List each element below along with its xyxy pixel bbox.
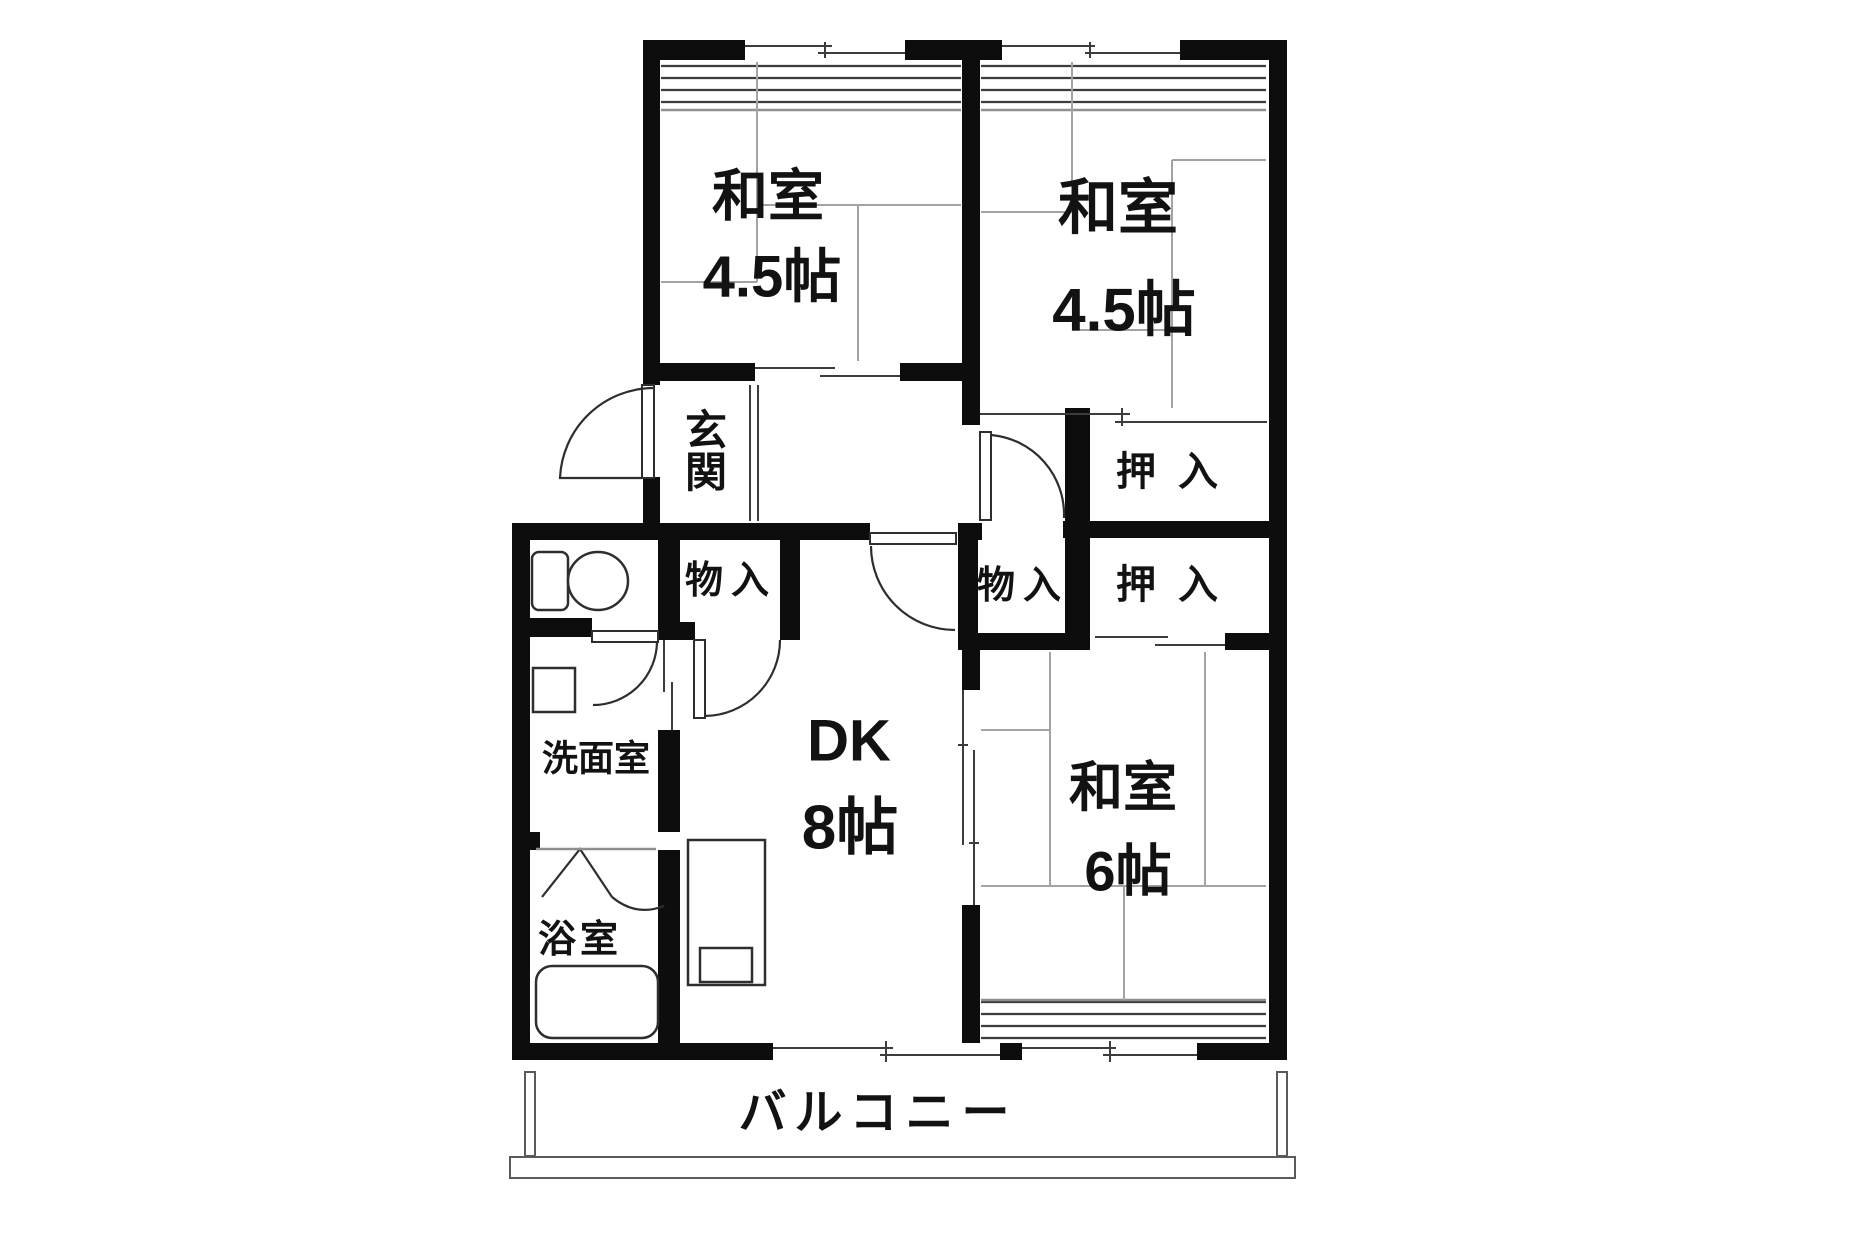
wall-left-upper <box>643 40 660 385</box>
fusuma-oshiire2 <box>1095 637 1225 645</box>
floor-plan-svg: 和室 4.5帖 和室 4.5帖 和室 6帖 DK 8帖 玄関 押入 押入 物入 … <box>0 0 1850 1233</box>
size-label-dk: 8帖 <box>802 794 898 863</box>
room-label-closet-1: 押入 <box>1116 450 1240 494</box>
wall-oshiire-divider <box>1063 521 1287 538</box>
size-label-japanese-room-2: 4.5帖 <box>1052 277 1195 344</box>
room-label-washroom: 洗面室 <box>542 738 650 779</box>
room-label-japanese-room-2: 和室 <box>1058 175 1178 242</box>
room-label-closet-2: 押入 <box>1116 563 1240 607</box>
wall-dk-room3-b <box>962 905 980 1043</box>
wall-bath-top-stub <box>530 832 540 850</box>
wall-annex-top <box>512 523 660 540</box>
window-band-room3 <box>981 1002 1266 1038</box>
wall-hall-bottom-2 <box>800 523 870 540</box>
storage1-door-arc <box>705 640 780 716</box>
slider-dk-room3 <box>958 690 979 905</box>
toilet-bowl <box>568 552 628 610</box>
wall-hall-bottom-1 <box>660 523 800 540</box>
fusuma-room2-south <box>980 408 1267 426</box>
room-label-storage-2: 物入 <box>977 565 1069 607</box>
storage1-door-leaf <box>694 640 705 718</box>
toilet-door-arc <box>593 642 657 705</box>
floor-plan-page: 和室 4.5帖 和室 4.5帖 和室 6帖 DK 8帖 玄関 押入 押入 物入 … <box>0 0 1850 1233</box>
window-top-right <box>1002 42 1180 58</box>
hall-dk-door-arc <box>871 546 955 630</box>
room-label-storage-1: 物入 <box>685 560 777 602</box>
toilet-door-leaf <box>592 631 658 642</box>
room-label-bathroom: 浴室 <box>538 918 622 961</box>
toilet-tank <box>532 552 568 610</box>
slider-room1-south <box>755 368 900 376</box>
entry-step-line <box>750 385 758 521</box>
size-label-japanese-room-1: 4.5帖 <box>703 245 842 310</box>
wall-bottom-2 <box>1000 1043 1022 1060</box>
window-band-room2 <box>981 66 1266 102</box>
wall-fusuma-block <box>1065 408 1090 425</box>
wall-annex-right-mid <box>658 730 680 832</box>
window-band-room1 <box>661 66 961 102</box>
storage2-door-arc <box>991 435 1064 518</box>
wall-bottom-1 <box>512 1043 773 1060</box>
balcony-rail-front <box>510 1157 1295 1178</box>
room-label-entrance: 玄関 <box>680 408 727 492</box>
wall-storage1-bottom-b <box>780 622 800 640</box>
wall-right <box>1269 40 1287 1060</box>
room-label-japanese-room-3: 和室 <box>1069 758 1177 818</box>
wall-toilet-bottom-a <box>530 618 592 637</box>
window-top-left <box>745 42 905 58</box>
room-label-japanese-room-1: 和室 <box>712 165 824 228</box>
wall-dk-room3-a <box>962 650 980 690</box>
wall-left-annex <box>512 523 530 1060</box>
room-label-dk: DK <box>807 709 891 774</box>
front-door-leaf <box>642 385 654 478</box>
front-door-arc <box>560 388 654 478</box>
wall-storage2-left <box>958 523 978 650</box>
wall-storage2-bottom <box>958 633 1090 650</box>
wall-storage1-bottom-a <box>658 622 695 640</box>
tatami-room3 <box>981 652 1266 1000</box>
room-label-balcony: バルコニー <box>738 1087 1017 1140</box>
balcony-door-dk <box>773 1041 1000 1062</box>
wall-room3-top-right <box>1225 633 1269 650</box>
slider-dk-washroom <box>664 640 672 730</box>
wall-top-rooms-divider <box>962 40 980 425</box>
balcony-rail-right <box>1277 1072 1287 1156</box>
balcony-rail-left <box>525 1072 535 1156</box>
kitchen-sink <box>700 948 752 982</box>
size-label-japanese-room-3: 6帖 <box>1084 840 1171 903</box>
bath-door-fold <box>542 849 664 910</box>
wash-basin <box>533 668 575 712</box>
wall-room1-bottom-a <box>643 363 755 381</box>
wall-top-2 <box>905 40 1002 60</box>
window-room3-south <box>1022 1041 1197 1062</box>
storage2-door-leaf <box>980 432 991 520</box>
wall-bottom-3 <box>1197 1043 1287 1060</box>
wall-room1-bottom-b <box>900 363 962 381</box>
wall-annex-right-low <box>658 850 680 1043</box>
hall-dk-door-leaf <box>870 533 956 544</box>
bathtub <box>536 966 658 1038</box>
